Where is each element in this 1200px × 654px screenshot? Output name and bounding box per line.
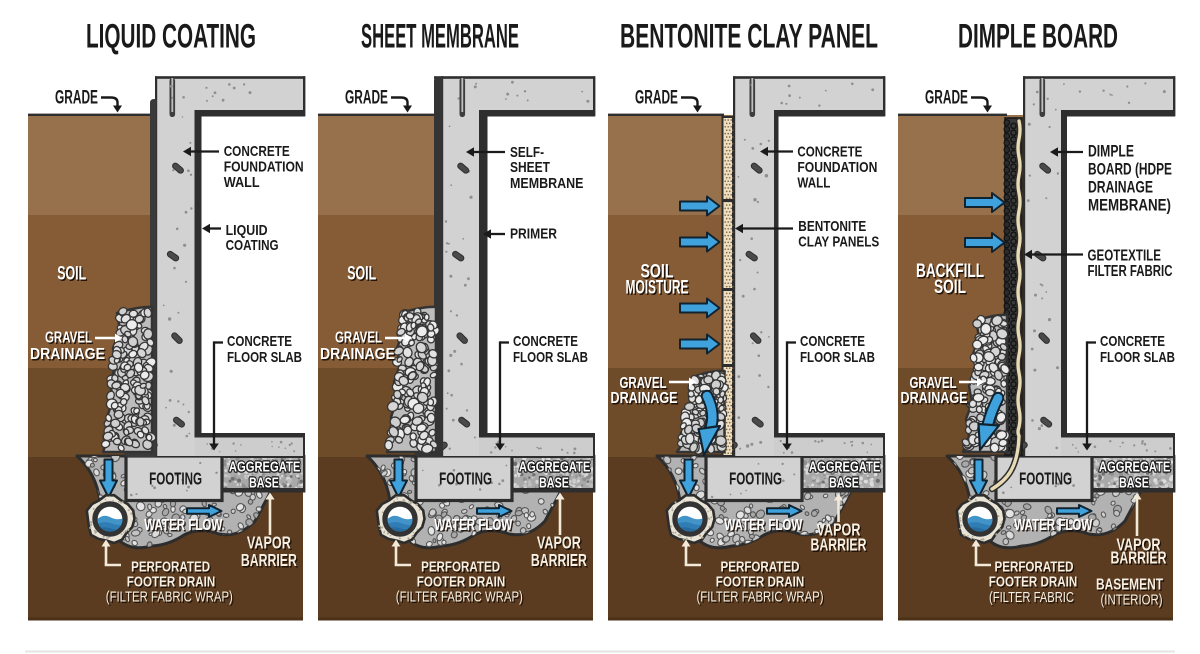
svg-text:DRAINAGE: DRAINAGE (1088, 177, 1153, 196)
svg-text:FOOTER DRAIN: FOOTER DRAIN (127, 574, 216, 590)
svg-text:CONCRETE: CONCRETE (797, 144, 862, 161)
svg-text:CLAY PANELS: CLAY PANELS (798, 234, 879, 251)
svg-text:AGGREGATE: AGGREGATE (1099, 459, 1171, 476)
svg-text:DRAINAGE: DRAINAGE (30, 346, 105, 363)
svg-text:CONCRETE: CONCRETE (513, 333, 578, 350)
svg-text:BOARD (HDPE: BOARD (HDPE (1088, 160, 1172, 179)
svg-text:FLOOR SLAB: FLOOR SLAB (227, 349, 302, 366)
svg-text:BARRIER: BARRIER (1111, 547, 1167, 567)
svg-text:CONCRETE: CONCRETE (1100, 333, 1165, 350)
svg-text:PERFORATED: PERFORATED (721, 559, 800, 575)
svg-text:AGGREGATE: AGGREGATE (809, 459, 881, 476)
svg-text:DRAINAGE: DRAINAGE (320, 346, 395, 363)
svg-text:BARRIER: BARRIER (531, 550, 587, 570)
svg-text:DIMPLE: DIMPLE (1088, 141, 1134, 160)
svg-text:CONCRETE: CONCRETE (800, 333, 865, 350)
svg-text:BARRIER: BARRIER (811, 535, 867, 555)
svg-text:WALL: WALL (797, 175, 830, 192)
svg-text:GRAVEL: GRAVEL (45, 330, 92, 347)
svg-text:BASE: BASE (539, 475, 569, 492)
svg-text:CONCRETE: CONCRETE (224, 143, 290, 160)
svg-text:WALL: WALL (224, 174, 260, 191)
svg-text:(FILTER FABRIC WRAP): (FILTER FABRIC WRAP) (697, 590, 824, 606)
svg-text:DIMPLE BOARD: DIMPLE BOARD (958, 18, 1118, 56)
svg-text:SHEET MEMBRANE: SHEET MEMBRANE (361, 18, 519, 56)
svg-text:(FILTER FABRIC WRAP): (FILTER FABRIC WRAP) (106, 590, 233, 606)
svg-text:SOIL: SOIL (347, 264, 376, 285)
svg-text:GRADE: GRADE (635, 88, 678, 109)
svg-text:BASE: BASE (829, 475, 859, 492)
svg-text:SHEET: SHEET (510, 159, 550, 176)
svg-text:BENTONITE CLAY PANEL: BENTONITE CLAY PANEL (620, 18, 878, 56)
svg-text:FOUNDATION: FOUNDATION (797, 159, 877, 176)
svg-text:PERFORATED: PERFORATED (995, 559, 1074, 575)
svg-text:DRAINAGE: DRAINAGE (901, 390, 968, 407)
svg-text:FLOOR SLAB: FLOOR SLAB (800, 349, 875, 366)
svg-text:CONCRETE: CONCRETE (227, 333, 292, 350)
svg-text:DRAINAGE: DRAINAGE (611, 390, 678, 407)
svg-text:PERFORATED: PERFORATED (131, 559, 210, 575)
svg-text:GEOTEXTILE: GEOTEXTILE (1088, 248, 1162, 265)
svg-text:PRIMER: PRIMER (510, 226, 557, 243)
svg-text:WATER FLOW: WATER FLOW (434, 517, 513, 534)
svg-text:FOUNDATION: FOUNDATION (224, 159, 304, 176)
svg-text:FLOOR SLAB: FLOOR SLAB (1100, 349, 1175, 366)
svg-text:BASE: BASE (249, 475, 279, 492)
svg-text:FOOTER DRAIN: FOOTER DRAIN (716, 574, 805, 590)
svg-text:BARRIER: BARRIER (241, 550, 297, 570)
svg-text:FOOTING: FOOTING (439, 468, 492, 488)
svg-text:LIQUID COATING: LIQUID COATING (86, 18, 256, 56)
svg-text:MOISTURE: MOISTURE (626, 278, 689, 299)
svg-text:FILTER FABRIC: FILTER FABRIC (1088, 263, 1173, 280)
svg-text:AGGREGATE: AGGREGATE (519, 459, 591, 476)
svg-text:FOOTER DRAIN: FOOTER DRAIN (417, 574, 506, 590)
svg-text:GRADE: GRADE (925, 88, 968, 109)
svg-text:MEMBRANE): MEMBRANE) (1088, 196, 1171, 215)
svg-text:MEMBRANE: MEMBRANE (510, 175, 584, 192)
svg-text:GRAVEL: GRAVEL (335, 330, 382, 347)
svg-text:WATER FLOW: WATER FLOW (724, 517, 803, 534)
svg-text:FOOTING: FOOTING (729, 468, 782, 488)
svg-text:SOIL: SOIL (57, 264, 86, 285)
svg-text:WATER FLOW: WATER FLOW (1014, 517, 1093, 534)
svg-text:BASEMENT: BASEMENT (1096, 577, 1163, 594)
svg-text:FOOTING: FOOTING (1019, 468, 1072, 488)
svg-text:COATING: COATING (226, 237, 279, 254)
svg-text:(INTERIOR): (INTERIOR) (1101, 593, 1163, 609)
svg-text:(FILTER FABRIC WRAP): (FILTER FABRIC WRAP) (396, 590, 523, 606)
svg-text:GRADE: GRADE (55, 88, 98, 109)
svg-text:PERFORATED: PERFORATED (421, 559, 500, 575)
svg-text:AGGREGATE: AGGREGATE (229, 459, 301, 476)
svg-text:WATER FLOW: WATER FLOW (144, 517, 223, 534)
svg-text:FLOOR SLAB: FLOOR SLAB (513, 349, 588, 366)
svg-text:FOOTING: FOOTING (149, 468, 202, 488)
svg-text:(FILTER FABRIC: (FILTER FABRIC (989, 590, 1074, 606)
svg-text:FOOTER DRAIN: FOOTER DRAIN (989, 574, 1078, 590)
svg-text:BENTONITE: BENTONITE (798, 218, 866, 235)
svg-text:BASE: BASE (1119, 475, 1149, 492)
svg-text:GRADE: GRADE (345, 88, 388, 109)
svg-text:SOIL: SOIL (934, 277, 966, 298)
